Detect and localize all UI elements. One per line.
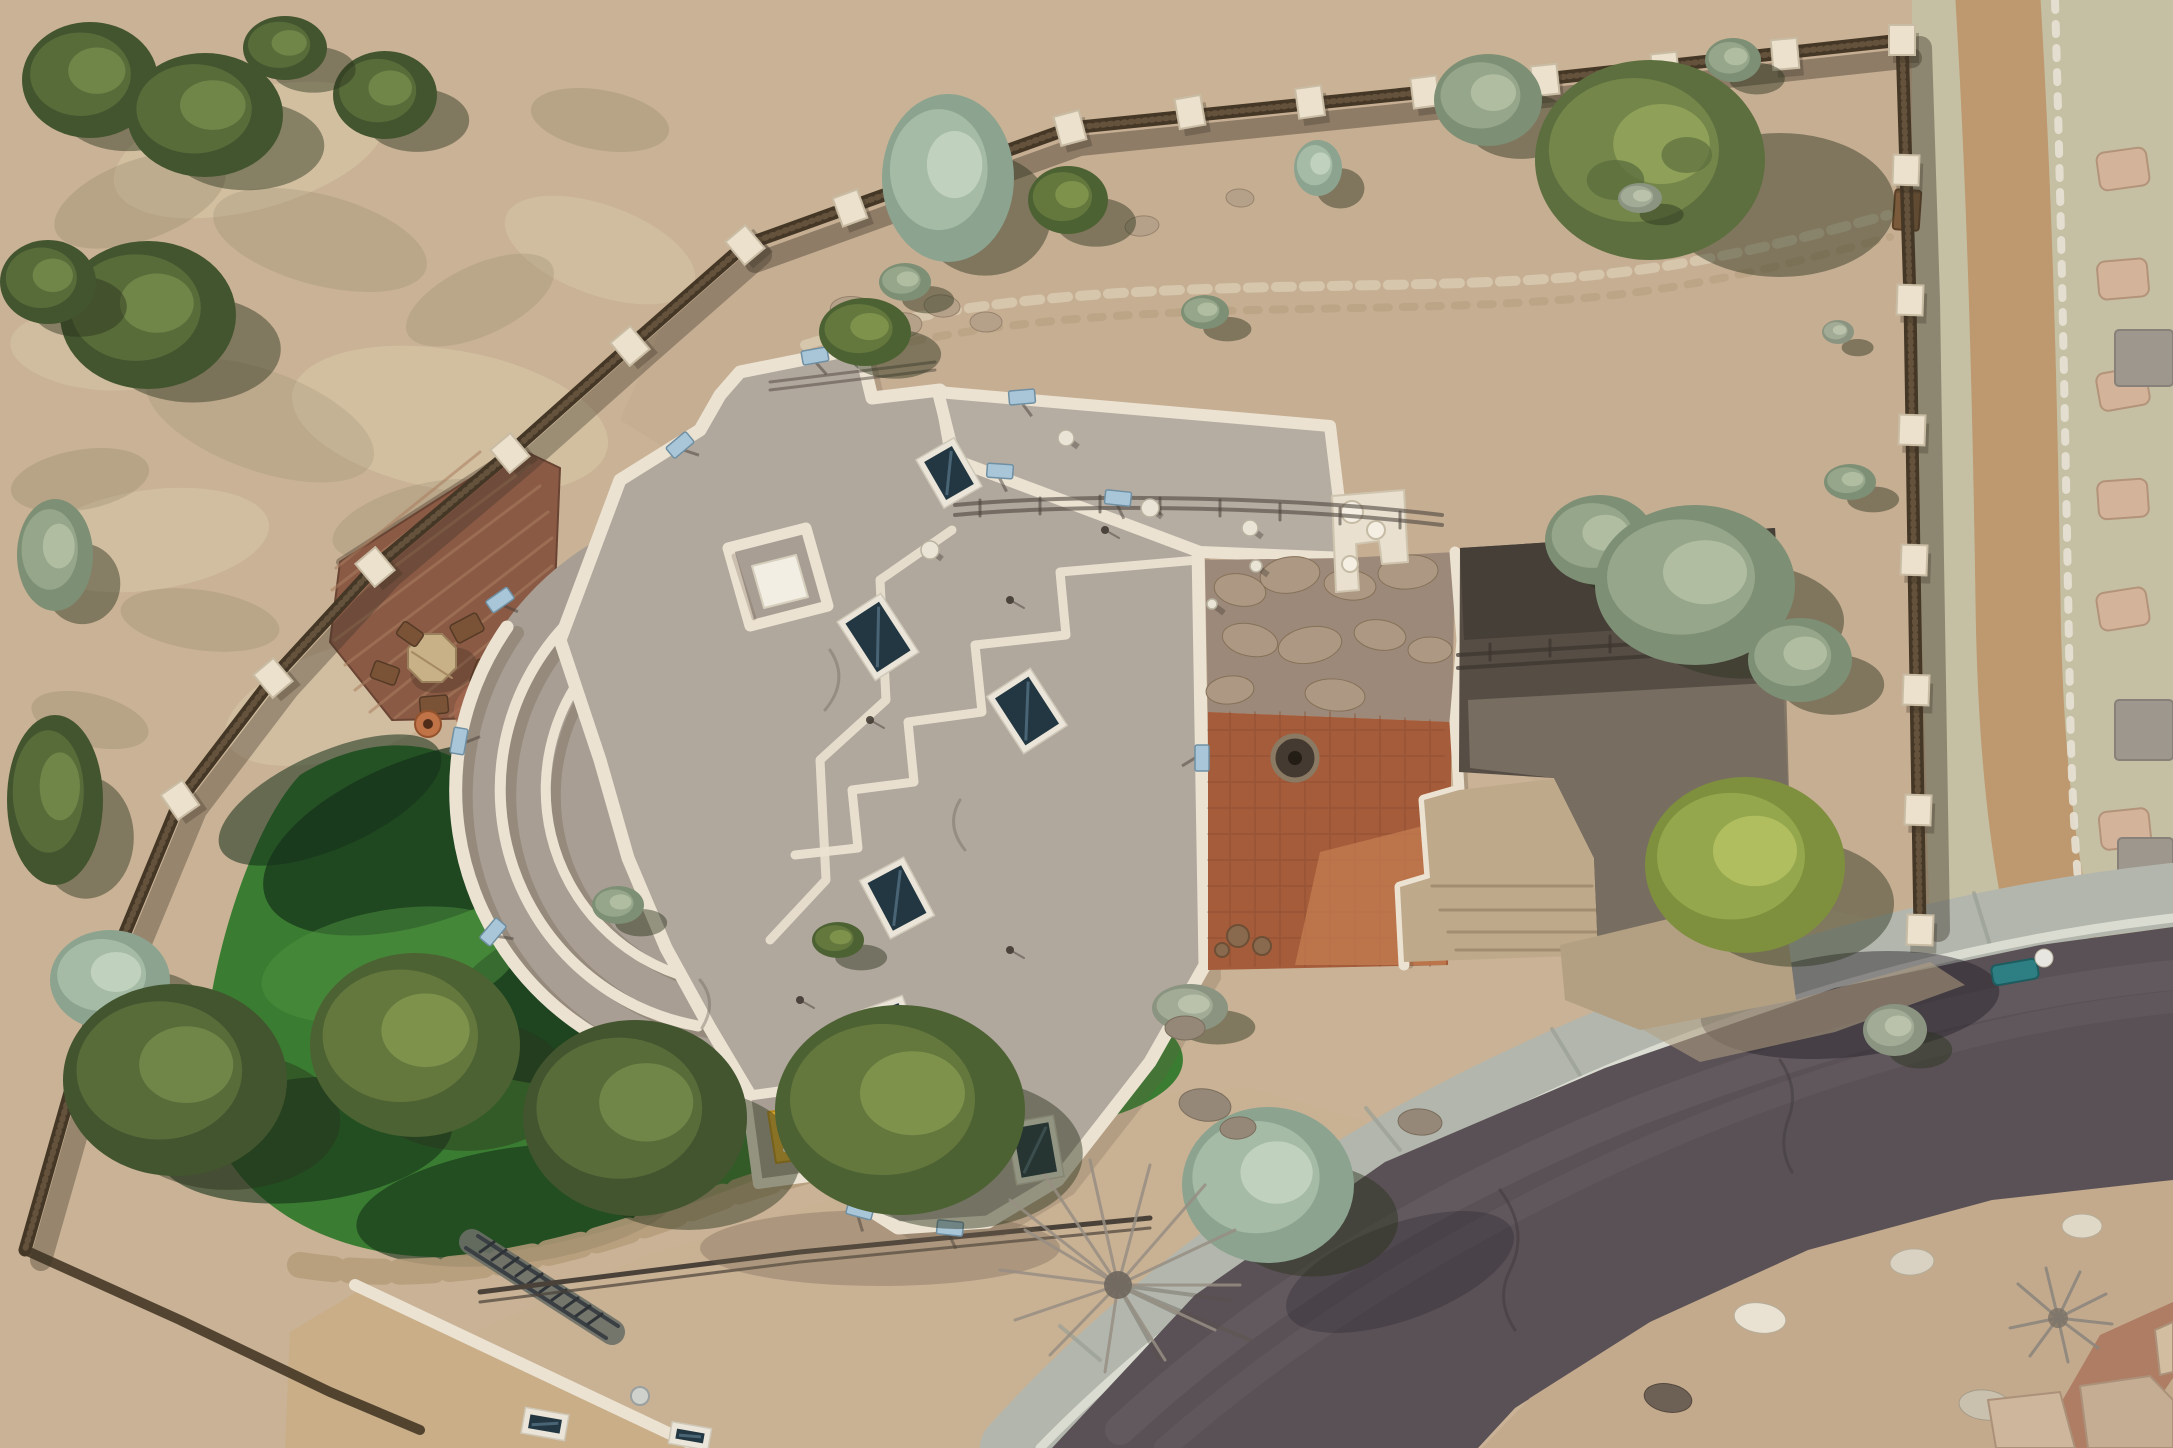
stepping-stone [2096, 258, 2149, 300]
bush-highlight [1885, 1015, 1912, 1036]
tree-highlight [40, 752, 80, 820]
roof-light [1058, 430, 1074, 446]
bush-highlight [1842, 472, 1864, 486]
fire-pit-center [1288, 751, 1302, 765]
bush-highlight [1633, 190, 1651, 202]
courtyard-stone [1408, 637, 1452, 663]
tree-highlight [927, 131, 982, 198]
aerial-photo-stage: Top-down drone photo of a pueblo-style h… [0, 0, 2173, 1448]
flagstone-paver [1988, 1392, 2075, 1448]
fence-pillar [1892, 155, 1919, 186]
paver-pad [2115, 700, 2173, 760]
canale-scupper [1104, 490, 1131, 507]
fence-pillar [1771, 38, 1800, 70]
chimney-pot [1342, 556, 1358, 572]
tree-highlight [180, 80, 246, 130]
bush-highlight [1310, 152, 1330, 174]
bush-highlight [850, 313, 889, 340]
tree-highlight [381, 993, 469, 1067]
tree-highlight [91, 952, 141, 992]
bush-highlight [610, 894, 632, 909]
tree-texture [1662, 137, 1713, 173]
bush-highlight [1724, 48, 1748, 66]
roof-light [921, 541, 939, 559]
path-light [1250, 560, 1262, 572]
bush-highlight [830, 930, 852, 944]
fence-pillar [1898, 415, 1925, 446]
planter-pot [1215, 943, 1229, 957]
planter-pot [1253, 937, 1271, 955]
bush-highlight [1197, 302, 1217, 316]
bush-highlight [1178, 995, 1210, 1014]
tree-highlight [1663, 540, 1747, 604]
satellite-dish [631, 1387, 649, 1405]
tree-highlight [68, 48, 125, 94]
bush-highlight [1055, 181, 1089, 208]
canale-scupper [987, 463, 1014, 479]
island-rock [2062, 1214, 2102, 1238]
bush-highlight [897, 271, 919, 286]
stepping-stone [2095, 586, 2150, 631]
planter-pot [1227, 925, 1249, 947]
bush-highlight [1833, 325, 1846, 335]
tree-highlight [1713, 816, 1797, 886]
bare-tree-core [1104, 1271, 1132, 1299]
bush-highlight [43, 524, 75, 569]
fence-pillar [1900, 545, 1927, 576]
fence-pillar [1295, 85, 1325, 118]
fence-pillar [1889, 25, 1915, 55]
stepping-stone [2096, 147, 2151, 192]
roof-light [1141, 499, 1159, 517]
fence-pillar [1902, 675, 1929, 706]
flagstone [970, 312, 1002, 332]
bush-highlight [1471, 74, 1516, 111]
curb-marker [2035, 949, 2053, 967]
tree-highlight [860, 1051, 965, 1135]
tree-highlight [139, 1026, 233, 1103]
flagstone-paver [2080, 1376, 2173, 1448]
tree-highlight [1240, 1141, 1312, 1203]
aerial-photo [0, 0, 2173, 1448]
front-boulder [1165, 1016, 1205, 1040]
tree-highlight [1783, 636, 1827, 670]
path-light [1207, 599, 1217, 609]
chiminea-mouth [423, 719, 433, 729]
stepping-stone [2097, 478, 2150, 519]
tree-highlight [120, 274, 194, 333]
canale-scupper [1195, 745, 1209, 771]
fence-pillar [1175, 95, 1206, 129]
fence-pillar [1906, 915, 1933, 946]
paver-pad [2115, 330, 2173, 386]
roof-light [1242, 520, 1258, 536]
fence-pillar [1904, 795, 1931, 826]
bare-shrub-base [2048, 1308, 2068, 1328]
chimney-pot [1367, 521, 1385, 539]
tree-highlight [33, 258, 73, 292]
tree-highlight [599, 1063, 693, 1141]
tree-highlight [368, 70, 412, 105]
fence-pillar [1896, 285, 1923, 316]
canale-scupper [1008, 389, 1035, 405]
tree-highlight [272, 30, 307, 56]
